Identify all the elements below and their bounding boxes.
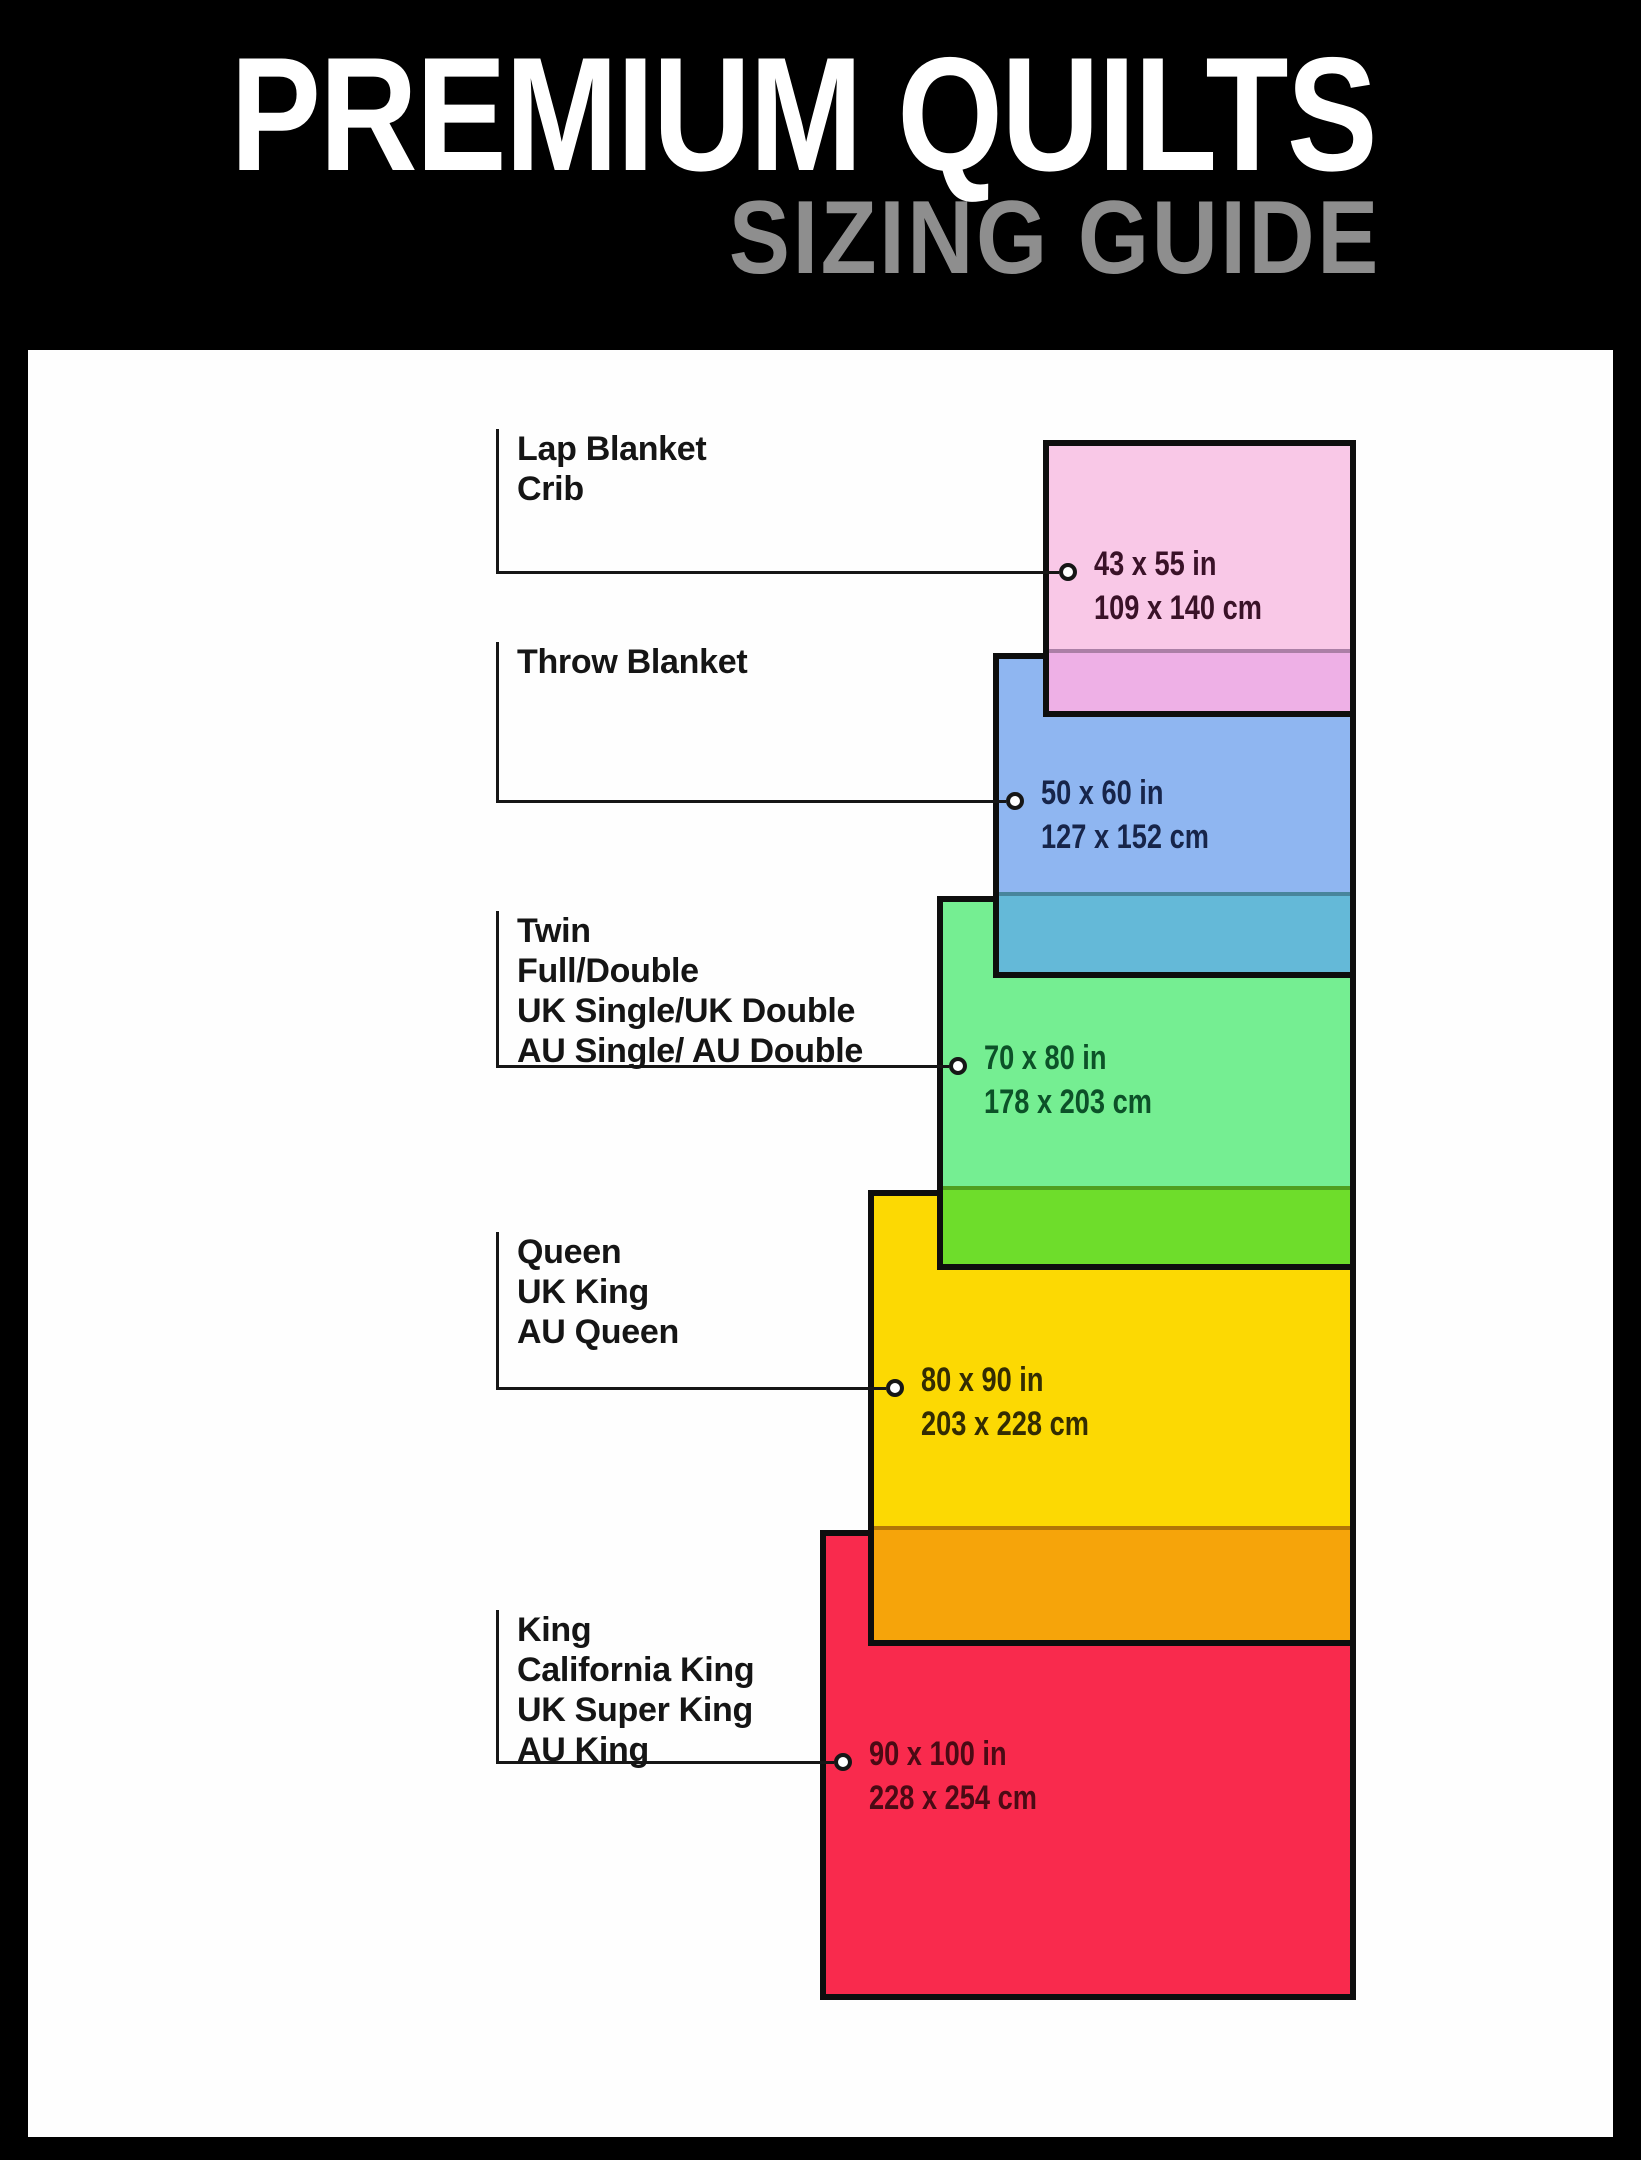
label-line: UK King [517,1272,679,1312]
label-line: California King [517,1650,754,1690]
label-line: AU King [517,1730,754,1770]
label-line: Crib [517,469,706,509]
marker-dot-icon [1006,792,1024,810]
label-line: UK Super King [517,1690,754,1730]
size-inches: 50 x 60 in [1041,771,1209,815]
connector-lap-vertical [496,429,499,572]
connector-throw-horizontal [496,800,1006,803]
size-cm: 203 x 228 cm [921,1402,1089,1446]
size-inches: 90 x 100 in [869,1732,1037,1776]
connector-twin-vertical [496,911,499,1068]
page-subtitle: SIZING GUIDE [729,186,1381,290]
page-title: PREMIUM QUILTS [230,34,1376,196]
size-cm: 109 x 140 cm [1094,586,1262,630]
overlap-band-queen-over-king [874,1526,1350,1640]
connector-queen-horizontal [496,1387,886,1390]
marker-dot-icon [834,1753,852,1771]
label-line: Queen [517,1232,679,1272]
size-dimensions-twin: 70 x 80 in 178 x 203 cm [984,1036,1152,1124]
overlap-band-throw-over-twin [999,892,1350,972]
connector-lap-horizontal [496,571,1059,574]
marker-dot-icon [1059,563,1077,581]
size-label-king: King California King UK Super King AU Ki… [517,1610,754,1770]
label-line: Throw Blanket [517,642,747,682]
content-area: Lap Blanket Crib Throw Blanket Twin Full… [28,350,1613,2137]
size-label-lap: Lap Blanket Crib [517,429,706,509]
label-line: Full/Double [517,951,863,991]
size-inches: 70 x 80 in [984,1036,1152,1080]
label-line: Twin [517,911,863,951]
label-line: AU Queen [517,1312,679,1352]
marker-dot-icon [949,1057,967,1075]
size-dimensions-king: 90 x 100 in 228 x 254 cm [869,1732,1037,1820]
label-line: UK Single/UK Double [517,991,863,1031]
page-frame: { "header": { "title": "PREMIUM QUILTS",… [0,0,1641,2160]
size-cm: 228 x 254 cm [869,1776,1037,1820]
connector-queen-vertical [496,1232,499,1390]
size-cm: 178 x 203 cm [984,1080,1152,1124]
label-line: King [517,1610,754,1650]
overlap-band-twin-over-queen [943,1186,1350,1264]
overlap-band-lap-over-throw [1049,649,1350,711]
size-dimensions-lap: 43 x 55 in 109 x 140 cm [1094,542,1262,630]
size-label-twin: Twin Full/Double UK Single/UK Double AU … [517,911,863,1071]
connector-throw-vertical [496,642,499,803]
size-dimensions-queen: 80 x 90 in 203 x 228 cm [921,1358,1089,1446]
connector-king-vertical [496,1610,499,1764]
size-inches: 43 x 55 in [1094,542,1262,586]
label-line: AU Single/ AU Double [517,1031,863,1071]
label-line: Lap Blanket [517,429,706,469]
marker-dot-icon [886,1379,904,1397]
size-label-queen: Queen UK King AU Queen [517,1232,679,1352]
size-cm: 127 x 152 cm [1041,815,1209,859]
header: PREMIUM QUILTS SIZING GUIDE [0,0,1641,350]
size-inches: 80 x 90 in [921,1358,1089,1402]
size-dimensions-throw: 50 x 60 in 127 x 152 cm [1041,771,1209,859]
size-label-throw: Throw Blanket [517,642,747,682]
